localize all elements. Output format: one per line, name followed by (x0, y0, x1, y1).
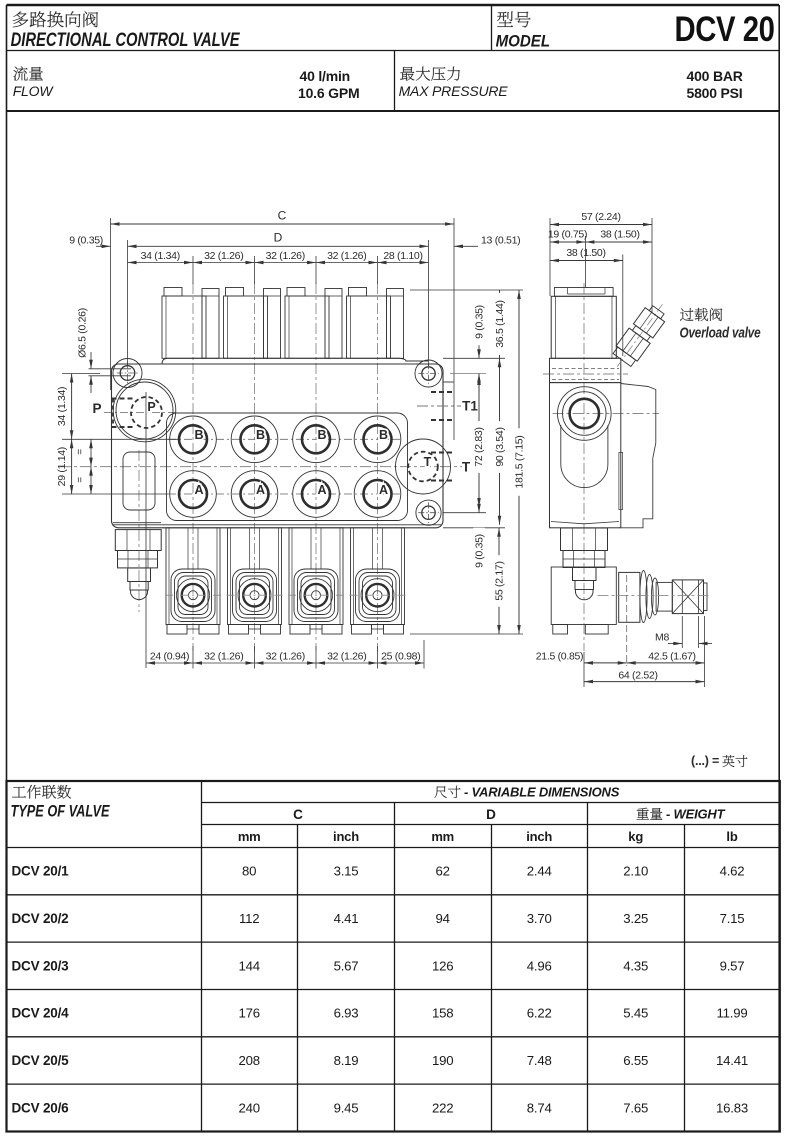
svg-text:34 (1.34): 34 (1.34) (141, 250, 180, 262)
svg-text:4.41: 4.41 (334, 911, 359, 926)
svg-text:144: 144 (238, 958, 259, 973)
svg-text:P: P (92, 401, 101, 416)
svg-text:=: = (75, 477, 86, 483)
svg-text:(...) =: (...) = (691, 754, 719, 768)
svg-text:5.67: 5.67 (334, 958, 359, 973)
svg-text:2.10: 2.10 (623, 864, 648, 879)
svg-text:TYPE OF VALVE: TYPE OF VALVE (11, 803, 111, 821)
svg-text:- VARIABLE DIMENSIONS: - VARIABLE DIMENSIONS (464, 785, 620, 800)
svg-text:inch: inch (526, 829, 552, 844)
svg-text:MODEL: MODEL (496, 32, 550, 51)
svg-text:T: T (424, 455, 432, 469)
svg-text:28 (1.10): 28 (1.10) (383, 250, 422, 262)
svg-text:9 (0.35): 9 (0.35) (69, 235, 103, 247)
svg-text:38 (1.50): 38 (1.50) (600, 229, 639, 241)
svg-text:lb: lb (726, 829, 737, 844)
svg-text:9 (0.35): 9 (0.35) (474, 305, 486, 339)
svg-text:=: = (75, 449, 86, 455)
svg-text:181.5 (7.15): 181.5 (7.15) (514, 435, 526, 488)
svg-text:B: B (256, 428, 265, 442)
svg-text:B: B (379, 428, 388, 442)
svg-text:inch: inch (333, 829, 359, 844)
svg-text:32 (1.26): 32 (1.26) (266, 250, 305, 262)
svg-text:Overload valve: Overload valve (680, 326, 761, 342)
svg-text:32 (1.26): 32 (1.26) (204, 651, 243, 663)
svg-text:9 (0.35): 9 (0.35) (474, 534, 486, 568)
svg-text:29 (1.14): 29 (1.14) (56, 447, 68, 486)
svg-text:222: 222 (432, 1100, 453, 1115)
svg-text:6.93: 6.93 (334, 1006, 359, 1021)
svg-text:kg: kg (628, 829, 643, 844)
svg-text:90 (3.54): 90 (3.54) (494, 427, 506, 466)
svg-text:42.5 (1.67): 42.5 (1.67) (648, 651, 695, 663)
svg-text:8.19: 8.19 (334, 1053, 359, 1068)
svg-text:5800 PSI: 5800 PSI (687, 85, 743, 101)
svg-text:DIRECTIONAL CONTROL VALVE: DIRECTIONAL CONTROL VALVE (11, 30, 241, 51)
svg-text:112: 112 (239, 911, 259, 926)
svg-text:MAX PRESSURE: MAX PRESSURE (399, 83, 509, 99)
svg-text:7.48: 7.48 (527, 1053, 552, 1068)
svg-text:mm: mm (431, 829, 454, 844)
svg-text:A: A (194, 483, 203, 497)
svg-text:3.70: 3.70 (527, 911, 552, 926)
svg-text:32 (1.26): 32 (1.26) (266, 651, 305, 663)
svg-text:5.45: 5.45 (623, 1006, 648, 1021)
svg-text:32 (1.26): 32 (1.26) (327, 651, 366, 663)
svg-text:55 (2.17): 55 (2.17) (494, 561, 506, 600)
svg-text:9.57: 9.57 (720, 958, 745, 973)
svg-text:32 (1.26): 32 (1.26) (327, 250, 366, 262)
svg-text:38 (1.50): 38 (1.50) (566, 247, 605, 259)
svg-text:13 (0.51): 13 (0.51) (481, 235, 520, 247)
svg-text:C: C (293, 807, 303, 822)
svg-text:D: D (486, 807, 496, 822)
svg-text:8.74: 8.74 (527, 1100, 552, 1115)
svg-text:Ø6.5 (0.26): Ø6.5 (0.26) (77, 308, 89, 358)
svg-text:11.99: 11.99 (716, 1006, 747, 1021)
svg-text:80: 80 (242, 864, 256, 879)
svg-text:2.44: 2.44 (527, 864, 552, 879)
svg-text:7.65: 7.65 (623, 1100, 648, 1115)
svg-text:M8: M8 (655, 632, 669, 644)
svg-text:57 (2.24): 57 (2.24) (581, 211, 620, 223)
svg-text:21.5 (0.85): 21.5 (0.85) (536, 651, 583, 663)
svg-text:DCV 20/5: DCV 20/5 (12, 1053, 70, 1068)
svg-text:62: 62 (436, 864, 450, 879)
svg-text:94: 94 (436, 911, 450, 926)
svg-text:DCV 20/2: DCV 20/2 (12, 911, 69, 926)
svg-text:240: 240 (238, 1100, 259, 1115)
svg-text:25 (0.98): 25 (0.98) (381, 651, 420, 663)
svg-text:DCV 20/3: DCV 20/3 (12, 958, 70, 973)
svg-text:3.15: 3.15 (334, 864, 359, 879)
svg-text:B: B (317, 428, 326, 442)
svg-text:14.41: 14.41 (716, 1053, 748, 1068)
svg-text:4.62: 4.62 (720, 864, 745, 879)
svg-text:B: B (194, 428, 203, 442)
svg-text:6.55: 6.55 (623, 1053, 648, 1068)
svg-text:400 BAR: 400 BAR (687, 68, 743, 84)
svg-text:190: 190 (432, 1053, 453, 1068)
svg-text:34 (1.34): 34 (1.34) (56, 387, 68, 426)
svg-text:DCV 20/4: DCV 20/4 (12, 1006, 70, 1021)
svg-text:A: A (317, 483, 326, 497)
svg-text:32 (1.26): 32 (1.26) (204, 250, 243, 262)
svg-text:64 (2.52): 64 (2.52) (618, 670, 657, 682)
svg-text:P: P (147, 400, 155, 414)
svg-text:158: 158 (432, 1006, 453, 1021)
svg-text:36.5 (1.44): 36.5 (1.44) (494, 300, 506, 347)
svg-text:mm: mm (238, 829, 261, 844)
svg-text:A: A (256, 483, 265, 497)
svg-text:9.45: 9.45 (334, 1100, 359, 1115)
svg-text:D: D (274, 231, 283, 245)
svg-text:24 (0.94): 24 (0.94) (150, 651, 189, 663)
svg-text:DCV 20/6: DCV 20/6 (12, 1100, 70, 1115)
svg-text:4.35: 4.35 (623, 958, 648, 973)
svg-text:4.96: 4.96 (527, 958, 552, 973)
svg-text:DCV 20/1: DCV 20/1 (12, 864, 70, 879)
svg-text:3.25: 3.25 (623, 911, 648, 926)
svg-text:40 l/min: 40 l/min (300, 68, 351, 84)
svg-text:10.6 GPM: 10.6 GPM (298, 85, 359, 101)
svg-text:72 (2.83): 72 (2.83) (473, 427, 485, 466)
svg-text:A: A (379, 483, 388, 497)
svg-text:T: T (462, 460, 471, 475)
svg-text:- WEIGHT: - WEIGHT (666, 807, 726, 822)
svg-text:7.15: 7.15 (720, 911, 745, 926)
svg-text:6.22: 6.22 (527, 1006, 552, 1021)
svg-text:208: 208 (238, 1053, 259, 1068)
svg-text:T1: T1 (462, 399, 478, 414)
svg-text:C: C (278, 209, 287, 223)
svg-text:DCV 20: DCV 20 (675, 9, 775, 49)
svg-text:126: 126 (432, 958, 453, 973)
svg-text:176: 176 (238, 1006, 259, 1021)
svg-text:19 (0.75): 19 (0.75) (548, 229, 587, 241)
svg-text:16.83: 16.83 (716, 1100, 748, 1115)
svg-text:FLOW: FLOW (13, 83, 55, 99)
